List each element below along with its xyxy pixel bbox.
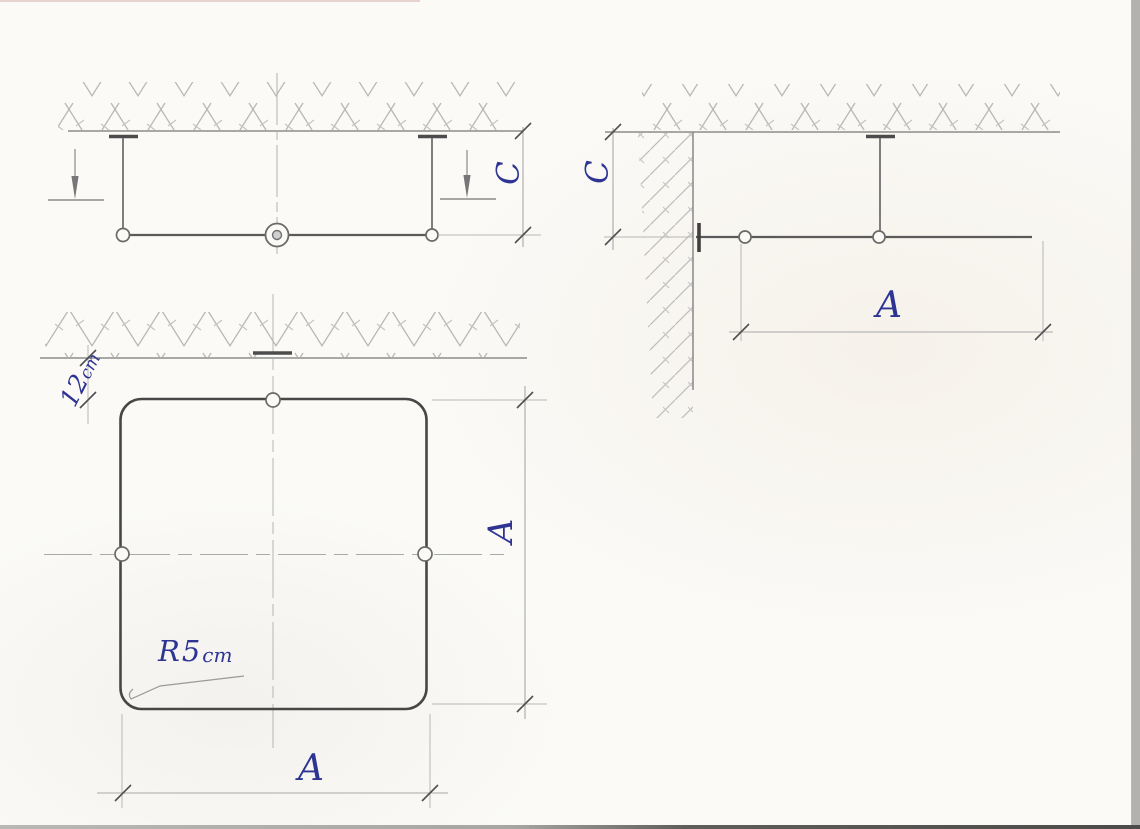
radius-leader-line (129, 676, 244, 699)
radius-unit: cm (202, 645, 232, 666)
ceiling-hatch (642, 84, 1060, 130)
rod-joint (739, 231, 751, 243)
dimension-label-a-plan-right: A (484, 519, 518, 544)
radius-letter: R (158, 637, 180, 666)
datum-arrow-left (48, 149, 104, 200)
radius-value: 5 (182, 637, 200, 666)
dimension-a-plan-right (432, 386, 547, 719)
dimension-c-front (438, 123, 541, 247)
plan-view (40, 294, 547, 808)
rod-joint (266, 393, 280, 407)
dimension-label-c-corner: C (583, 160, 614, 184)
scan-edge-bottom (0, 825, 1140, 829)
radius-label-r5cm: R5cm (158, 637, 232, 666)
dimension-label-a-corner: A (876, 288, 902, 324)
wall-hatch (638, 133, 693, 418)
rod-joint (418, 547, 432, 561)
scan-edge-top (0, 0, 420, 2)
center-swivel-pin (273, 231, 282, 240)
rod-joint (426, 229, 438, 241)
rod-joint (115, 547, 129, 561)
datum-arrow-right (440, 150, 496, 199)
scan-edge-right (1131, 0, 1140, 829)
dimension-label-a-plan-bottom: A (298, 751, 324, 787)
front-elevation-view (48, 73, 541, 254)
corner-elevation-view (604, 84, 1060, 418)
scanned-drawing-page: C C A A A 12cm R5cm (0, 0, 1140, 829)
wall-hatch (45, 312, 520, 357)
dimension-label-c-front: C (494, 161, 525, 185)
ceiling-hatch (58, 82, 515, 130)
rod-joint (873, 231, 885, 243)
rod-joint (117, 229, 130, 242)
technical-drawing (0, 0, 1140, 829)
